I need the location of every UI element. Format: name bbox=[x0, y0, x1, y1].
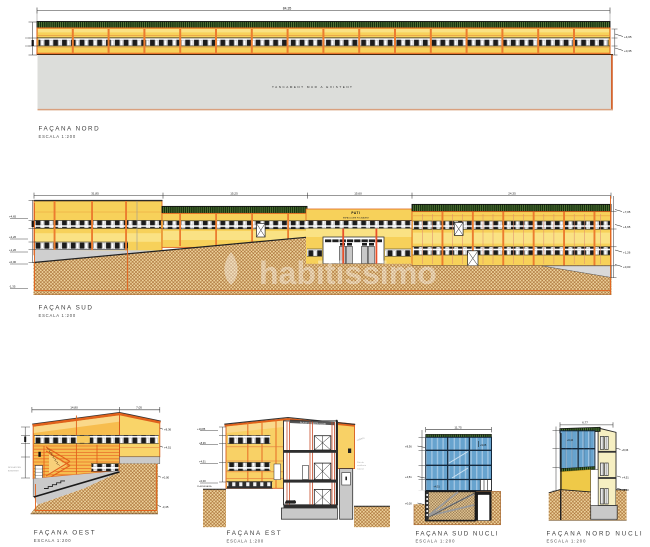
svg-text:ESCALA 1:200: ESCALA 1:200 bbox=[39, 313, 77, 318]
svg-text:TANCAMENT MUR A EXISTENT: TANCAMENT MUR A EXISTENT bbox=[272, 85, 353, 89]
svg-text:+6,44: +6,44 bbox=[567, 439, 574, 442]
svg-text:+8,36: +8,36 bbox=[199, 441, 206, 445]
svg-text:6,77: 6,77 bbox=[582, 421, 588, 425]
svg-text:ESCALA 1:200: ESCALA 1:200 bbox=[39, 134, 77, 139]
svg-text:+0,00: +0,00 bbox=[199, 479, 206, 483]
svg-text:-1,35: -1,35 bbox=[9, 285, 16, 289]
svg-text:+4,51: +4,51 bbox=[622, 476, 629, 480]
svg-text:+8,36: +8,36 bbox=[164, 428, 172, 432]
svg-text:15,25: 15,25 bbox=[230, 191, 238, 195]
svg-text:Pati de: Pati de bbox=[357, 461, 365, 464]
svg-text:+2,26: +2,26 bbox=[9, 235, 17, 239]
svg-text:habitissimo: habitissimo bbox=[259, 255, 437, 291]
svg-text:ESCALA 1:200: ESCALA 1:200 bbox=[416, 539, 456, 544]
svg-text:15,60: 15,60 bbox=[354, 191, 362, 195]
svg-text:24,35: 24,35 bbox=[508, 191, 516, 195]
svg-text:+9,05: +9,05 bbox=[480, 444, 487, 447]
svg-text:ESCALA 1:200: ESCALA 1:200 bbox=[34, 538, 72, 543]
svg-text:+7,05: +7,05 bbox=[623, 210, 631, 214]
svg-text:FAÇANA SUD NUCLI: FAÇANA SUD NUCLI bbox=[416, 530, 499, 537]
svg-text:FAÇANA SUD: FAÇANA SUD bbox=[39, 305, 94, 312]
svg-text:PATI: PATI bbox=[351, 211, 360, 215]
svg-text:+4,51: +4,51 bbox=[434, 486, 441, 489]
svg-text:-3,45: -3,45 bbox=[162, 505, 169, 509]
svg-text:+0,00: +0,00 bbox=[623, 265, 631, 269]
svg-text:+4,51: +4,51 bbox=[164, 446, 172, 450]
svg-text:+10,85: +10,85 bbox=[197, 427, 206, 431]
svg-text:NOU ACCES: NOU ACCES bbox=[8, 466, 21, 469]
svg-text:EXISTENT: EXISTENT bbox=[8, 471, 19, 473]
svg-text:+3,60: +3,60 bbox=[622, 488, 629, 492]
svg-text:+4,51: +4,51 bbox=[405, 475, 412, 479]
svg-text:ventilacio: ventilacio bbox=[357, 464, 367, 467]
svg-text:+4,65: +4,65 bbox=[624, 35, 632, 39]
svg-text:PLANTA BAIXA: PLANTA BAIXA bbox=[197, 485, 212, 488]
svg-text:+1,26: +1,26 bbox=[9, 248, 17, 252]
svg-text:natural: natural bbox=[357, 467, 364, 470]
svg-text:+1,26: +1,26 bbox=[623, 251, 631, 255]
svg-text:coberta: coberta bbox=[356, 436, 365, 442]
svg-text:ESCALA 1:200: ESCALA 1:200 bbox=[547, 539, 587, 544]
svg-text:FAÇANA EST: FAÇANA EST bbox=[227, 530, 283, 537]
svg-text:FAÇANA OEST: FAÇANA OEST bbox=[34, 530, 96, 537]
svg-text:+4,51: +4,51 bbox=[199, 460, 206, 464]
svg-text:+4,65: +4,65 bbox=[9, 215, 17, 219]
svg-text:FAÇANA NORD: FAÇANA NORD bbox=[39, 126, 101, 133]
svg-text:ESPAI LLIURE POLIVALENT: ESPAI LLIURE POLIVALENT bbox=[343, 216, 370, 219]
svg-text:+8,36: +8,36 bbox=[405, 445, 412, 449]
svg-text:FAÇANA NORD NUCLI: FAÇANA NORD NUCLI bbox=[547, 530, 644, 537]
svg-text:+4,65: +4,65 bbox=[623, 225, 631, 229]
svg-text:+0,00: +0,00 bbox=[9, 260, 17, 264]
svg-text:+0,00: +0,00 bbox=[405, 502, 412, 506]
svg-text:14,80: 14,80 bbox=[70, 405, 78, 409]
svg-text:+0,35: +0,35 bbox=[624, 49, 632, 53]
svg-text:ESCALA 1:200: ESCALA 1:200 bbox=[227, 538, 265, 543]
svg-text:+8,36: +8,36 bbox=[622, 448, 629, 452]
svg-text:84,35: 84,35 bbox=[283, 6, 292, 10]
svg-text:7,05: 7,05 bbox=[136, 405, 142, 409]
svg-text:31,85: 31,85 bbox=[91, 191, 99, 195]
svg-text:+0,00: +0,00 bbox=[162, 476, 170, 480]
svg-text:11,75: 11,75 bbox=[454, 425, 462, 429]
